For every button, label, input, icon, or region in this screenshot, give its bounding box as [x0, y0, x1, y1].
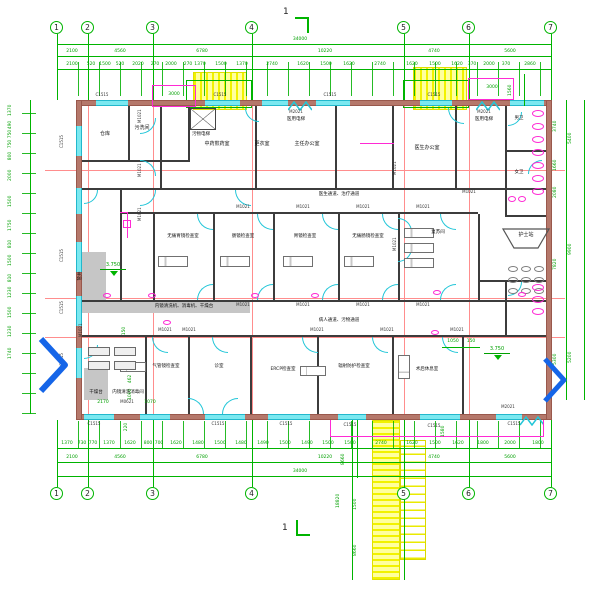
- component-tag: M1021: [138, 211, 154, 221]
- component-tag: M1021: [232, 205, 254, 211]
- partition-wall: [213, 214, 215, 300]
- partition-wall: [392, 337, 394, 414]
- component-tag: M1021: [306, 328, 328, 334]
- sanitary-fixture-icon: [508, 196, 516, 202]
- dimension-text: 1370: [233, 62, 251, 68]
- sanitary-fixture-icon: [433, 290, 441, 295]
- sanitary-fixture-icon: [532, 188, 544, 195]
- component-tag: M1021: [412, 205, 434, 211]
- door-swing-icon: [197, 284, 213, 300]
- dimension-text: 220: [124, 422, 138, 432]
- room-label: 内镜清洗消毒间: [96, 390, 160, 396]
- component-tag: C1515: [84, 422, 104, 428]
- partition-wall: [505, 282, 507, 335]
- dimension-text: 2740: [371, 62, 389, 68]
- dimension-text: 1230: [8, 288, 26, 298]
- partition-wall: [505, 215, 546, 217]
- dimension-text: 3000: [160, 92, 188, 99]
- sanitary-fixture-icon: [163, 320, 171, 325]
- grid-bubble: 4: [245, 21, 258, 34]
- component-tag: C1515: [60, 304, 78, 314]
- axis-line: [469, 70, 470, 465]
- dimension-line: [551, 420, 552, 487]
- dimension-line: [551, 34, 552, 100]
- waiting-chair-icon: [521, 277, 531, 283]
- dimension-text: 2100: [63, 62, 81, 68]
- partition-wall: [478, 214, 480, 300]
- dimension-text: 5600: [498, 49, 522, 56]
- door-swing-icon: [188, 398, 204, 414]
- axis-line: [45, 298, 565, 299]
- grid-bubble: 6: [462, 487, 475, 500]
- component-tag: M1021: [292, 303, 314, 309]
- room-label: 仓库: [91, 132, 119, 139]
- plumbing-line: [330, 420, 331, 436]
- room-label: 医用电梯: [280, 117, 312, 123]
- waiting-chair-icon: [508, 288, 518, 294]
- dimension-text: 9900: [568, 245, 586, 255]
- dimension-text: 1500: [319, 441, 337, 447]
- dimension-text: 1500: [426, 441, 444, 447]
- door-swing-icon: [222, 398, 238, 414]
- dimension-text: 2080: [553, 188, 571, 198]
- dimension-text: 1480: [232, 441, 250, 447]
- washer-icon: [114, 361, 136, 370]
- component-tag: C1515: [208, 422, 228, 428]
- component-tag: C1515: [504, 422, 524, 428]
- dimension-text: 810: [8, 239, 26, 249]
- dimension-line: [57, 56, 551, 57]
- room-label: 病人通道、污物通道: [296, 318, 382, 324]
- dimension-text: 1660: [553, 161, 571, 171]
- dimension-text: 520: [111, 62, 129, 68]
- dimension-text: 1370: [191, 62, 209, 68]
- component-tag: C1515: [340, 423, 360, 429]
- room-label: 复苏间: [423, 230, 453, 236]
- sanitary-fixture-icon: [532, 308, 544, 315]
- section-number: 1: [282, 524, 290, 534]
- dimension-text: 2740: [372, 441, 390, 447]
- window: [338, 414, 366, 420]
- sanitary-fixture-icon: [518, 196, 526, 202]
- grid-bubble: 2: [81, 487, 94, 500]
- component-tag: M1021: [412, 303, 434, 309]
- waiting-chair-icon: [534, 277, 544, 283]
- dimension-text: 2020: [129, 62, 147, 68]
- component-tag: C1515: [210, 93, 230, 99]
- dimension-text: 1370: [100, 441, 118, 447]
- partition-wall: [153, 214, 155, 300]
- room-label: ERCP检查室: [260, 367, 306, 373]
- dimension-line: [252, 34, 253, 100]
- dimension-text: 1500: [317, 62, 335, 68]
- washer-icon: [88, 347, 110, 356]
- room-label: 管井: [79, 271, 103, 281]
- component-tag: M1021: [178, 328, 200, 334]
- washer-icon: [88, 361, 110, 370]
- sanitary-fixture-icon: [532, 110, 544, 117]
- room-label: 中药煎药室: [194, 142, 240, 149]
- dimension-text: 10220: [311, 455, 339, 462]
- double-door-icon: [288, 96, 312, 106]
- dimension-line: [57, 34, 58, 100]
- room-label: 术后休息室: [405, 367, 449, 373]
- sanitary-fixture-icon: [532, 123, 544, 130]
- grid-bubble: 5: [397, 21, 410, 34]
- component-tag: C1515: [60, 252, 78, 262]
- partition-wall: [505, 188, 507, 215]
- entrance-arrow-icon: [38, 336, 70, 394]
- floor-plan-canvas: 3400021004560678010220474056002100520150…: [0, 0, 600, 600]
- dimension-line: [88, 420, 89, 487]
- dimension-text: 7820: [553, 260, 571, 270]
- window: [205, 414, 245, 420]
- dimension-text: 5200: [568, 353, 586, 363]
- waiting-chair-icon: [508, 266, 518, 272]
- elevator-icon: [190, 108, 216, 130]
- dimension-text: 1500: [212, 62, 230, 68]
- dimension-text: 1070: [140, 400, 160, 407]
- partition-wall: [392, 106, 394, 188]
- door-swing-icon: [322, 214, 338, 230]
- waiting-chair-icon: [534, 266, 544, 272]
- room-label: 内镜清洗机、消毒机、干燥台: [124, 304, 244, 311]
- dimension-text: 1800: [529, 441, 547, 447]
- room-label: 辐射防护检查室: [326, 364, 382, 370]
- dimension-text: 1620: [403, 441, 421, 447]
- partition-wall: [462, 337, 464, 414]
- dimension-text: 2170: [92, 400, 114, 407]
- dimension-text: 370: [497, 62, 515, 68]
- door-swing-icon: [245, 108, 259, 122]
- dimension-text: 1500: [353, 500, 371, 510]
- dimension-text: 10220: [311, 49, 339, 56]
- dimension-text: 2000: [8, 171, 26, 181]
- dimension-line: [404, 420, 405, 580]
- dimension-text: 1560: [508, 86, 526, 96]
- dimension-text: 2000: [162, 62, 180, 68]
- fixture-box-icon: [123, 220, 131, 228]
- dimension-text: 1740: [8, 349, 26, 359]
- door-swing-icon: [84, 190, 98, 204]
- axis-line: [252, 70, 253, 465]
- sanitary-fixture-icon: [532, 284, 544, 291]
- door-swing-icon: [197, 214, 213, 230]
- dimension-text: 1050: [442, 339, 464, 346]
- window: [496, 414, 522, 420]
- dimension-text: 1620: [403, 62, 421, 68]
- plumbing-line: [360, 143, 394, 144]
- sanitary-fixture-icon: [311, 293, 319, 298]
- dimension-text: 5600: [498, 455, 522, 462]
- dimension-text: 1620: [167, 441, 185, 447]
- component-tag: M2021: [472, 110, 496, 116]
- component-tag: M0621: [116, 400, 138, 406]
- dimension-text: 2860: [521, 62, 539, 68]
- component-tag: M1021: [138, 113, 154, 123]
- partition-wall: [160, 106, 162, 188]
- sanitary-fixture-icon: [251, 293, 259, 298]
- door-swing-icon: [257, 214, 273, 230]
- component-tag: C1515: [320, 93, 340, 99]
- dimension-text: 1500: [8, 197, 26, 207]
- grid-bubble: 1: [50, 21, 63, 34]
- dimension-text: 150: [464, 339, 478, 346]
- room-label: 污洗间: [126, 126, 158, 133]
- dimension-text: 1500: [426, 62, 444, 68]
- component-tag: M2021: [284, 110, 308, 116]
- dimension-line: [57, 462, 551, 463]
- window: [205, 100, 240, 106]
- double-door-icon: [476, 96, 500, 106]
- partition-wall: [120, 212, 478, 214]
- exam-bed-icon: [220, 256, 250, 267]
- dimension-text: 1620: [449, 441, 467, 447]
- window: [96, 100, 128, 106]
- component-tag: M1021: [446, 328, 468, 334]
- waiting-chair-icon: [508, 277, 518, 283]
- dimension-text: 5400: [568, 134, 586, 144]
- dimension-text: 370: [463, 62, 481, 68]
- door-swing-icon: [382, 214, 398, 230]
- dimension-text: 1490: [254, 441, 272, 447]
- grid-bubble: 6: [462, 21, 475, 34]
- dimension-line: [442, 347, 480, 348]
- waiting-chair-icon: [521, 266, 531, 272]
- room-label: 护士站: [510, 233, 542, 240]
- dimension-text: 2740: [263, 62, 281, 68]
- room-label: 肠镜检查室: [220, 234, 266, 240]
- dimension-line: [296, 534, 310, 536]
- plumbing-line: [330, 436, 544, 437]
- dimension-text: 6780: [190, 455, 214, 462]
- room-label: 胃镜检查室: [282, 234, 328, 240]
- room-label: 主任办公室: [286, 142, 328, 149]
- dimension-text: 750: [8, 129, 26, 139]
- dimension-text: 1580: [441, 427, 457, 437]
- room-label: 诊室: [207, 364, 231, 370]
- dimension-text: 810: [8, 273, 26, 283]
- window: [76, 188, 82, 214]
- room-label: 医用电梯: [468, 117, 500, 123]
- dimension-text: 1370: [8, 106, 26, 116]
- door-swing-icon: [372, 337, 388, 353]
- room-label: 男卫: [508, 116, 530, 122]
- dimension-text: 8660: [353, 546, 371, 556]
- dimension-text: 1620: [340, 62, 358, 68]
- dimension-text: 462: [128, 374, 142, 384]
- room-label: 女卫: [508, 170, 530, 176]
- door-swing-icon: [448, 108, 464, 124]
- partition-wall: [335, 106, 337, 188]
- room-label: 气管镜检查室: [143, 364, 189, 370]
- level-marker: 3.750: [484, 346, 510, 354]
- partition-wall: [273, 214, 275, 300]
- dimension-text: 150: [122, 326, 136, 336]
- dimension-text: 1230: [8, 327, 26, 337]
- exam-bed-icon: [158, 256, 188, 267]
- room-label: 无痛肠镜检查室: [338, 234, 398, 240]
- door-swing-icon: [302, 337, 318, 353]
- component-tag: M1021: [352, 205, 374, 211]
- window: [510, 100, 544, 106]
- dimension-text: 1620: [294, 62, 312, 68]
- partition-wall: [505, 106, 507, 188]
- dimension-text: 1500: [211, 441, 229, 447]
- component-tag: M1021: [393, 165, 409, 175]
- sanitary-fixture-icon: [532, 162, 544, 169]
- dimension-text: 2100: [60, 455, 84, 462]
- dimension-line: [252, 420, 253, 487]
- plumbing-line: [120, 212, 128, 213]
- window: [420, 100, 452, 106]
- exam-bed-icon: [404, 258, 434, 268]
- dimension-line: [57, 420, 58, 487]
- axis-line: [45, 170, 565, 171]
- room-label: 医生通道、治疗通道: [296, 192, 382, 198]
- level-marker: 3.750: [100, 262, 126, 270]
- dimension-text: 3000: [478, 85, 506, 92]
- dimension-text: 4560: [108, 455, 132, 462]
- window: [84, 414, 114, 420]
- exam-bed-icon: [344, 256, 374, 267]
- component-tag: M1021: [79, 327, 95, 337]
- sanitary-fixture-icon: [532, 136, 544, 143]
- sanitary-fixture-icon: [431, 330, 439, 335]
- grid-bubble: 5: [397, 487, 410, 500]
- dimension-line: [57, 448, 551, 449]
- door-swing-icon: [212, 337, 228, 353]
- dimension-line: [153, 420, 154, 487]
- door-swing-icon: [382, 284, 398, 300]
- grid-bubble: 7: [544, 487, 557, 500]
- door-swing-icon: [257, 284, 273, 300]
- component-tag: M2021: [496, 405, 520, 411]
- door-swing-icon: [152, 337, 168, 353]
- grid-bubble: 7: [544, 21, 557, 34]
- dimension-text: 1500: [8, 308, 26, 318]
- dimension-text: 4740: [422, 455, 446, 462]
- exam-bed-icon: [283, 256, 313, 267]
- partition-wall: [128, 106, 130, 160]
- door-swing-icon: [440, 214, 456, 230]
- grid-bubble: 4: [245, 487, 258, 500]
- dimension-text: 34000: [281, 37, 319, 45]
- window: [316, 100, 350, 106]
- dimension-line: [469, 420, 470, 487]
- section-number: 1: [283, 8, 291, 18]
- dimension-text: 2100: [60, 49, 84, 56]
- dimension-text: 2000: [480, 62, 498, 68]
- level-triangle-icon: [110, 271, 118, 276]
- dimension-text: 1500: [8, 256, 26, 266]
- dimension-text: 1750: [8, 221, 26, 231]
- dimension-text: 8660: [341, 455, 361, 465]
- dimension-text: 1620: [121, 441, 139, 447]
- grid-bubble: 3: [146, 21, 159, 34]
- partition-wall: [250, 337, 252, 414]
- double-door-icon: [520, 411, 544, 421]
- component-tag: C1515: [276, 422, 296, 428]
- dimension-text: 800: [8, 151, 26, 161]
- dimension-text: 4740: [422, 49, 446, 56]
- room-label: 更衣室: [246, 142, 278, 149]
- level-triangle-icon: [494, 355, 502, 360]
- sanitary-fixture-icon: [148, 293, 156, 298]
- window: [268, 414, 310, 420]
- dimension-text: 700: [150, 441, 168, 447]
- window: [140, 414, 170, 420]
- component-tag: M1021: [393, 241, 409, 251]
- grid-bubble: 2: [81, 21, 94, 34]
- component-tag: M1021: [458, 190, 480, 196]
- room-label: 污物电梯: [182, 132, 220, 138]
- window: [262, 100, 288, 106]
- dimension-text: 6780: [190, 49, 214, 56]
- grid-bubble: 3: [146, 487, 159, 500]
- dimension-text: 1500: [276, 441, 294, 447]
- dimension-text: 3740: [553, 122, 571, 132]
- window: [420, 414, 460, 420]
- dimension-line: [307, 17, 309, 33]
- component-tag: M1021: [292, 205, 314, 211]
- sanitary-fixture-icon: [103, 293, 111, 298]
- dimension-text: 750: [8, 139, 26, 149]
- component-tag: C1515: [424, 93, 444, 99]
- component-tag: M1021: [376, 328, 398, 334]
- exit-arrow-icon: [542, 356, 568, 404]
- sanitary-fixture-icon: [532, 175, 544, 182]
- sanitary-fixture-icon: [532, 296, 544, 303]
- grid-bubble: 1: [50, 487, 63, 500]
- dimension-text: 1490: [298, 441, 316, 447]
- plumbing-line: [543, 420, 544, 436]
- partition-wall: [120, 188, 122, 302]
- dimension-text: 1800: [474, 441, 492, 447]
- component-tag: C1515: [92, 93, 112, 99]
- partition-wall: [338, 214, 340, 300]
- dimension-text: 4560: [108, 49, 132, 56]
- door-swing-icon: [440, 284, 456, 300]
- component-tag: M1021: [352, 303, 374, 309]
- room-label: 无痛胃镜检查室: [154, 234, 212, 240]
- room-label: 医生办公室: [406, 146, 448, 153]
- washer-icon: [114, 347, 136, 356]
- component-tag: M1021: [138, 167, 154, 177]
- dimension-text: 2000: [501, 441, 519, 447]
- dimension-text: 34000: [281, 469, 319, 477]
- dimension-text: 1480: [189, 441, 207, 447]
- component-tag: C1515: [60, 138, 78, 148]
- door-swing-icon: [322, 284, 338, 300]
- partition-wall: [82, 160, 190, 162]
- component-tag: M1021: [154, 328, 176, 334]
- sanitary-fixture-icon: [532, 149, 544, 156]
- sanitary-fixture-icon: [518, 292, 526, 297]
